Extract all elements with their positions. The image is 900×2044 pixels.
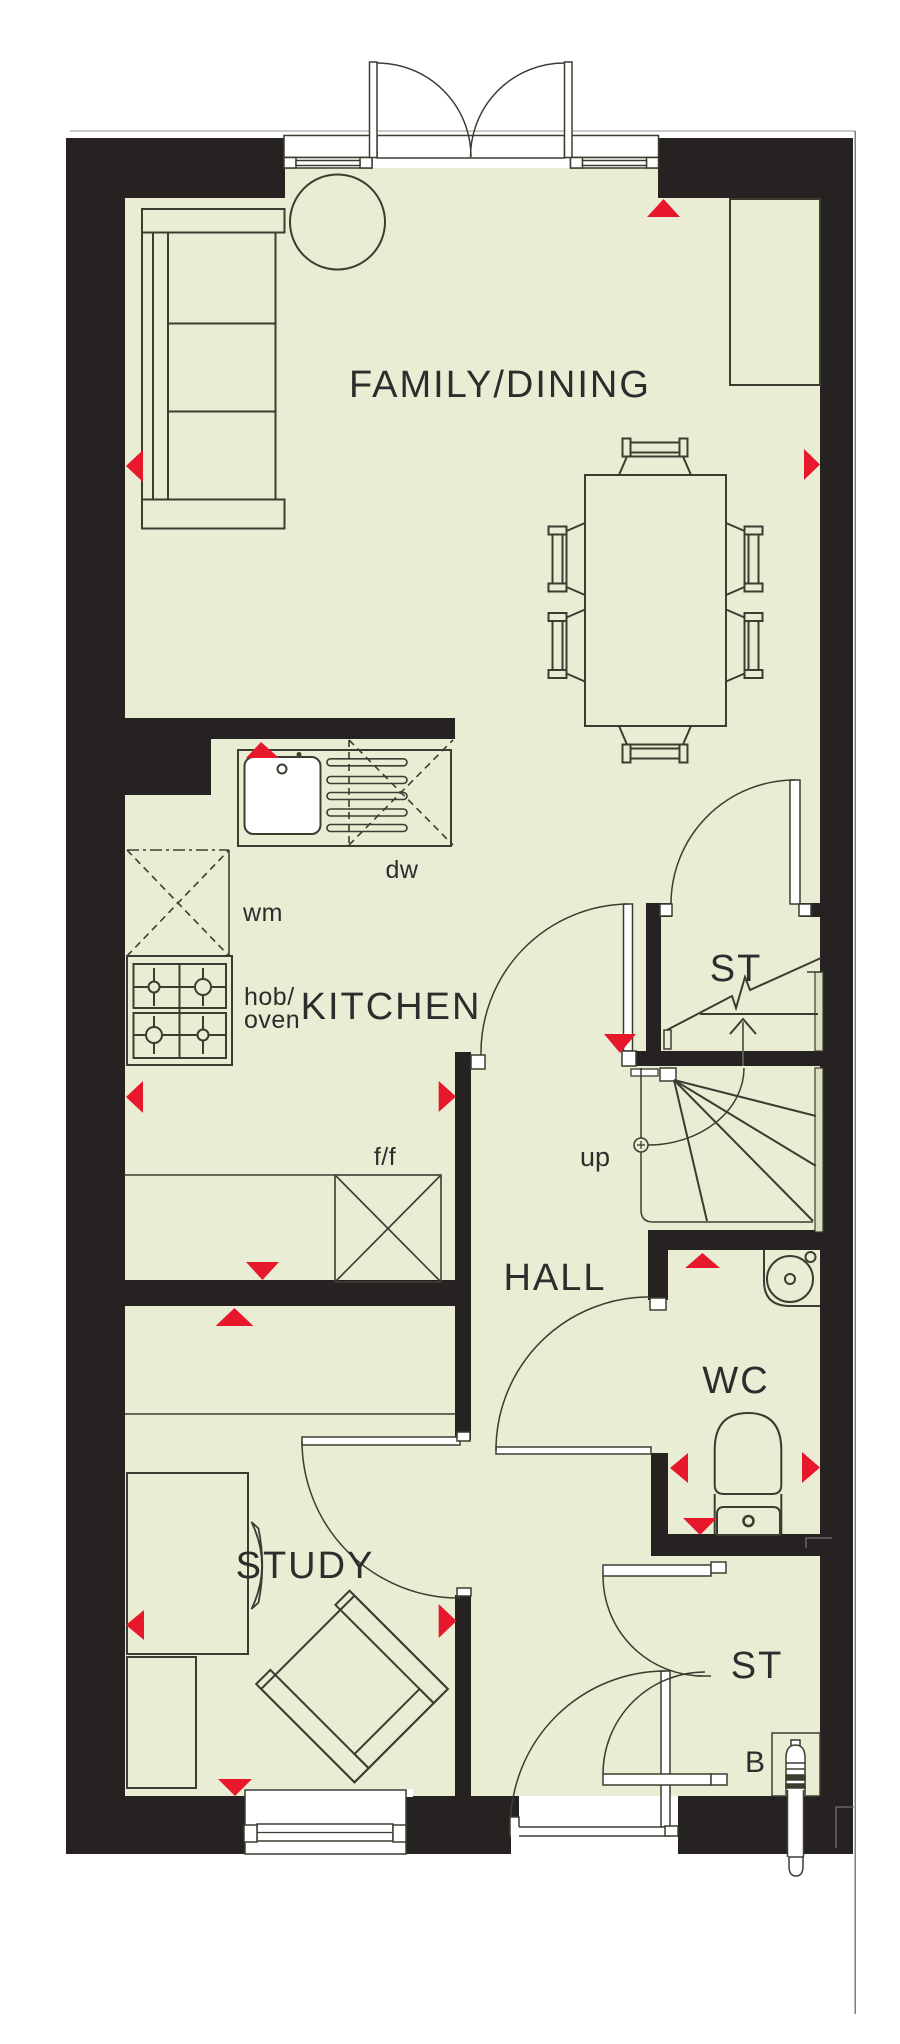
svg-text:oven: oven	[244, 1006, 300, 1034]
svg-text:B: B	[745, 1746, 765, 1779]
svg-text:dw: dw	[386, 856, 419, 884]
svg-text:wm: wm	[242, 899, 283, 927]
svg-text:KITCHEN: KITCHEN	[301, 986, 482, 1028]
svg-text:f/f: f/f	[374, 1143, 396, 1171]
svg-text:WC: WC	[702, 1360, 769, 1402]
svg-text:FAMILY/DINING: FAMILY/DINING	[349, 364, 651, 406]
svg-text:STUDY: STUDY	[236, 1545, 375, 1587]
svg-text:ST: ST	[731, 1645, 784, 1687]
svg-text:HALL: HALL	[503, 1257, 606, 1299]
svg-text:ST: ST	[710, 948, 763, 990]
svg-text:up: up	[580, 1142, 610, 1172]
